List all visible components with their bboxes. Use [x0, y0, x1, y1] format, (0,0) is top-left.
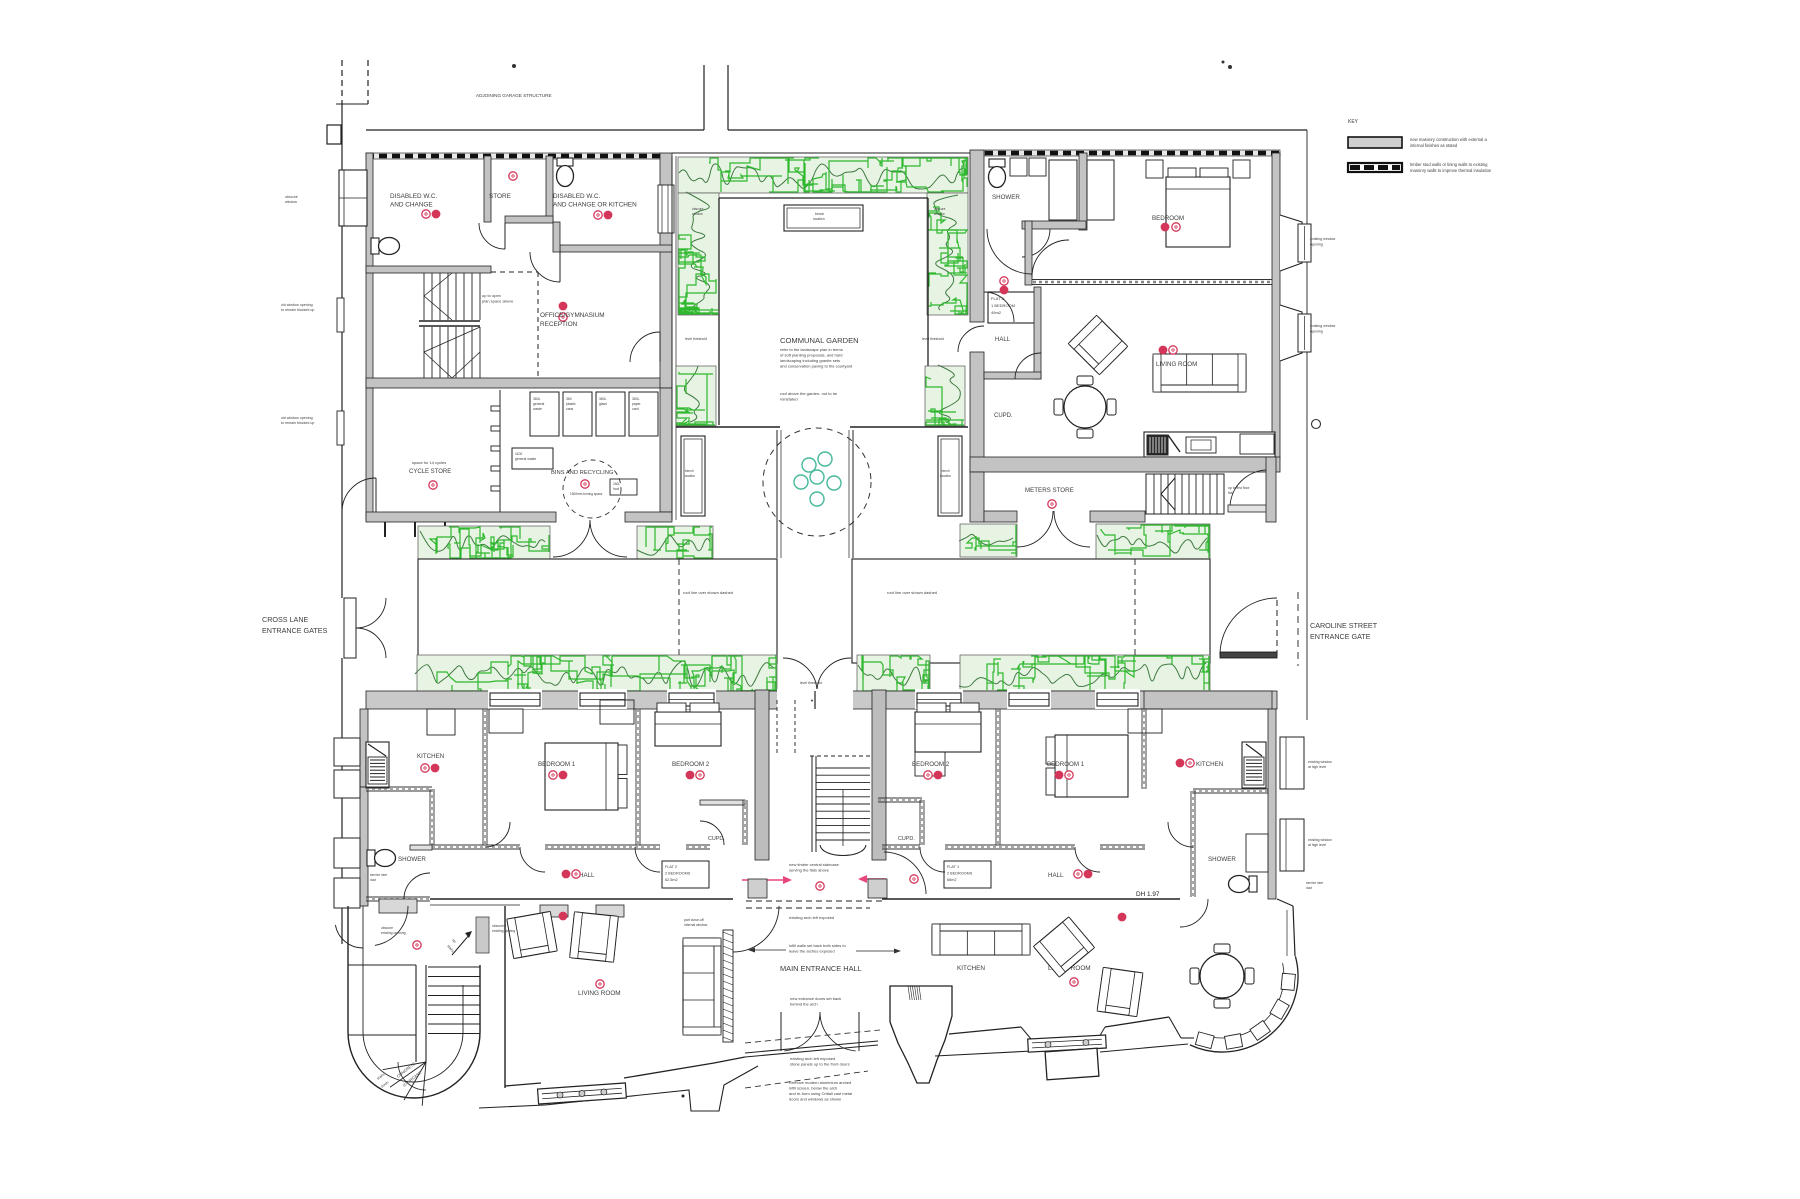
- svg-text:roof line over shown dashed: roof line over shown dashed: [683, 590, 733, 595]
- svg-text:roof above the garden- not to: roof above the garden- not to be: [780, 391, 838, 396]
- svg-text:SHOWER: SHOWER: [398, 856, 426, 863]
- svg-text:DISABLED W.C.: DISABLED W.C.: [390, 193, 437, 200]
- svg-text:at high level: at high level: [1308, 843, 1326, 847]
- svg-text:ENTRANCE GATES: ENTRANCE GATES: [262, 626, 328, 635]
- svg-text:new timber central staircase: new timber central staircase: [789, 862, 840, 867]
- svg-text:up to first floor: up to first floor: [1228, 486, 1250, 490]
- svg-text:level threshold: level threshold: [685, 337, 707, 341]
- svg-text:part close-off: part close-off: [684, 918, 704, 922]
- svg-text:ADJOINING GARAGE STRUCTURE: ADJOINING GARAGE STRUCTURE: [476, 93, 552, 98]
- svg-text:CAROLINE STREET: CAROLINE STREET: [1310, 621, 1378, 630]
- svg-text:CUPD.: CUPD.: [898, 836, 915, 842]
- svg-text:level threshold: level threshold: [800, 681, 822, 685]
- svg-text:duct: duct: [1306, 886, 1312, 890]
- svg-text:window: window: [692, 212, 703, 216]
- svg-text:Remove modern aluminium arched: Remove modern aluminium arched: [789, 1080, 851, 1085]
- svg-text:existing window: existing window: [1308, 760, 1332, 764]
- svg-text:waste: waste: [533, 407, 542, 411]
- svg-text:obscure: obscure: [934, 207, 946, 211]
- svg-text:doors and windows as shown: doors and windows as shown: [789, 1097, 841, 1102]
- svg-text:and conservation paving to the: and conservation paving to the courtyard: [780, 364, 852, 369]
- svg-text:window: window: [285, 200, 297, 204]
- svg-text:KITCHEN: KITCHEN: [417, 753, 444, 760]
- svg-text:at high level: at high level: [1308, 765, 1326, 769]
- svg-text:plan space above: plan space above: [482, 299, 514, 304]
- svg-text:existing window: existing window: [1308, 838, 1332, 842]
- svg-text:240L: 240L: [613, 482, 620, 486]
- svg-text:of soft planting proposals, an: of soft planting proposals, and hard: [780, 353, 843, 358]
- svg-text:DH 1.97: DH 1.97: [1136, 891, 1160, 898]
- svg-text:RECEPTION: RECEPTION: [540, 321, 578, 328]
- svg-text:STORE: STORE: [489, 193, 511, 200]
- svg-text:LIVING ROOM: LIVING ROOM: [1156, 361, 1197, 368]
- svg-text:MAIN ENTRANCE HALL: MAIN ENTRANCE HALL: [780, 964, 862, 973]
- svg-text:internal window: internal window: [684, 923, 708, 927]
- svg-text:360L: 360L: [632, 397, 640, 401]
- svg-text:serving the flats above: serving the flats above: [789, 868, 830, 873]
- svg-text:bench: bench: [815, 212, 824, 216]
- svg-text:paper: paper: [632, 402, 642, 406]
- svg-text:HALL: HALL: [995, 337, 1011, 343]
- svg-text:FLAT 2: FLAT 2: [665, 865, 677, 869]
- svg-text:landscaping including granite: landscaping including granite sets: [780, 358, 840, 363]
- svg-text:card: card: [632, 407, 639, 411]
- svg-text:OFFICE/GYMNASIUM: OFFICE/GYMNASIUM: [540, 312, 605, 319]
- svg-text:service riser: service riser: [1306, 881, 1324, 885]
- svg-text:space for 14 cycles: space for 14 cycles: [412, 460, 446, 465]
- svg-text:existing arch left exposed: existing arch left exposed: [790, 1056, 835, 1061]
- svg-text:BEDROOM 2: BEDROOM 2: [912, 761, 950, 768]
- svg-text:existing opening: existing opening: [381, 931, 406, 935]
- svg-text:infill screen, below the arch: infill screen, below the arch: [789, 1086, 837, 1091]
- svg-text:roof line over shown dashed: roof line over shown dashed: [887, 590, 937, 595]
- svg-text:COMMUNAL GARDEN: COMMUNAL GARDEN: [780, 336, 859, 345]
- svg-text:1 BEDROOM: 1 BEDROOM: [991, 303, 1015, 308]
- svg-text:66m2: 66m2: [947, 878, 957, 882]
- svg-text:glass: glass: [599, 402, 607, 406]
- svg-text:to remain blocked up: to remain blocked up: [281, 421, 314, 425]
- svg-text:food: food: [613, 487, 619, 491]
- svg-text:general: general: [533, 402, 545, 406]
- svg-text:SHOWER: SHOWER: [1208, 856, 1236, 863]
- svg-text:KEY: KEY: [1348, 119, 1359, 125]
- svg-text:new masonry construction with: new masonry construction with external a: [1410, 137, 1487, 142]
- svg-text:BEDROOM: BEDROOM: [1152, 215, 1184, 222]
- svg-text:DISABLED W.C.: DISABLED W.C.: [553, 193, 600, 200]
- svg-text:obscured: obscured: [492, 924, 506, 928]
- svg-text:BEDROOM 2: BEDROOM 2: [672, 761, 710, 768]
- svg-text:leave the arches exposed: leave the arches exposed: [789, 949, 835, 954]
- svg-text:timber stud walls or lining wa: timber stud walls or lining walls to exi…: [1410, 162, 1488, 167]
- svg-text:CUPD.: CUPD.: [994, 413, 1013, 419]
- svg-text:BINS AND RECYCLING: BINS AND RECYCLING: [551, 470, 614, 476]
- svg-text:62.5m2: 62.5m2: [665, 878, 678, 882]
- svg-text:KITCHEN: KITCHEN: [1196, 761, 1223, 768]
- svg-text:AND CHANGE: AND CHANGE: [390, 202, 433, 209]
- svg-text:existing arch left exposed: existing arch left exposed: [789, 915, 834, 920]
- svg-text:old window opening: old window opening: [281, 303, 313, 307]
- svg-text:existing window: existing window: [1310, 237, 1336, 241]
- svg-text:reinstated: reinstated: [780, 397, 798, 402]
- svg-text:2 BEDROOMS: 2 BEDROOMS: [665, 872, 691, 876]
- svg-text:obscure: obscure: [692, 207, 704, 211]
- svg-text:bench: bench: [685, 469, 694, 473]
- svg-text:▼: ▼: [810, 698, 814, 703]
- svg-text:opening: opening: [1310, 330, 1323, 334]
- svg-text:1100: 1100: [515, 452, 522, 456]
- svg-text:bench: bench: [941, 469, 950, 473]
- svg-text:360L: 360L: [533, 397, 541, 401]
- svg-text:old window opening: old window opening: [281, 416, 313, 420]
- svg-text:1500mm turning space: 1500mm turning space: [570, 492, 603, 496]
- svg-text:HALL: HALL: [1048, 872, 1064, 879]
- svg-text:AND CHANGE OR KITCHEN: AND CHANGE OR KITCHEN: [553, 202, 637, 209]
- svg-text:BEDROOM 1: BEDROOM 1: [1047, 761, 1085, 768]
- svg-text:cans: cans: [566, 407, 573, 411]
- svg-text:CROSS LANE: CROSS LANE: [262, 615, 309, 624]
- svg-text:new entrance doors set back: new entrance doors set back: [790, 996, 841, 1001]
- svg-text:obscure: obscure: [381, 926, 393, 930]
- svg-text:behind the arch: behind the arch: [790, 1002, 818, 1007]
- svg-text:duct: duct: [370, 878, 376, 882]
- svg-text:internal finishes as stated: internal finishes as stated: [1410, 143, 1458, 148]
- svg-text:360L: 360L: [599, 397, 607, 401]
- svg-text:plastic: plastic: [566, 402, 576, 406]
- svg-text:FLAT 1: FLAT 1: [947, 865, 959, 869]
- svg-text:LIVING ROOM: LIVING ROOM: [578, 990, 621, 997]
- svg-text:to remain blocked up: to remain blocked up: [281, 308, 314, 312]
- svg-text:and re-form using Crittall cas: and re-form using Crittall cast metal: [789, 1091, 852, 1096]
- svg-text:CYCLE STORE: CYCLE STORE: [409, 469, 451, 475]
- svg-text:location: location: [813, 217, 825, 221]
- svg-text:existing window: existing window: [1310, 324, 1336, 328]
- svg-text:360: 360: [566, 397, 572, 401]
- svg-text:49m2: 49m2: [991, 310, 1002, 315]
- svg-text:infill walls set back both sid: infill walls set back both sides to: [789, 943, 846, 948]
- svg-text:refer to the landscape plan in: refer to the landscape plan in terms: [780, 347, 843, 352]
- svg-text:up to open: up to open: [482, 293, 501, 298]
- svg-text:window: window: [934, 212, 945, 216]
- svg-text:HALL: HALL: [579, 872, 595, 879]
- svg-text:level threshold: level threshold: [922, 337, 944, 341]
- svg-text:service riser: service riser: [370, 873, 388, 877]
- svg-text:BEDROOM 1: BEDROOM 1: [538, 761, 576, 768]
- svg-text:location: location: [684, 474, 695, 478]
- svg-text:ENTRANCE GATE: ENTRANCE GATE: [1310, 632, 1371, 641]
- svg-text:METERS STORE: METERS STORE: [1025, 487, 1074, 494]
- svg-text:KITCHEN: KITCHEN: [957, 965, 985, 972]
- svg-text:opening: opening: [1310, 243, 1323, 247]
- svg-text:SHOWER: SHOWER: [992, 194, 1020, 201]
- svg-text:location: location: [940, 474, 951, 478]
- svg-text:general waste: general waste: [515, 457, 536, 461]
- svg-text:existing glazing: existing glazing: [492, 929, 515, 933]
- svg-text:obscure: obscure: [285, 195, 298, 199]
- svg-text:flat: flat: [1228, 491, 1233, 495]
- svg-text:2 BEDROOMS: 2 BEDROOMS: [947, 872, 973, 876]
- svg-text:stone panels up to the front d: stone panels up to the front doors: [790, 1062, 850, 1067]
- svg-text:masonry walls to improve therm: masonry walls to improve thermal insulat…: [1410, 168, 1492, 173]
